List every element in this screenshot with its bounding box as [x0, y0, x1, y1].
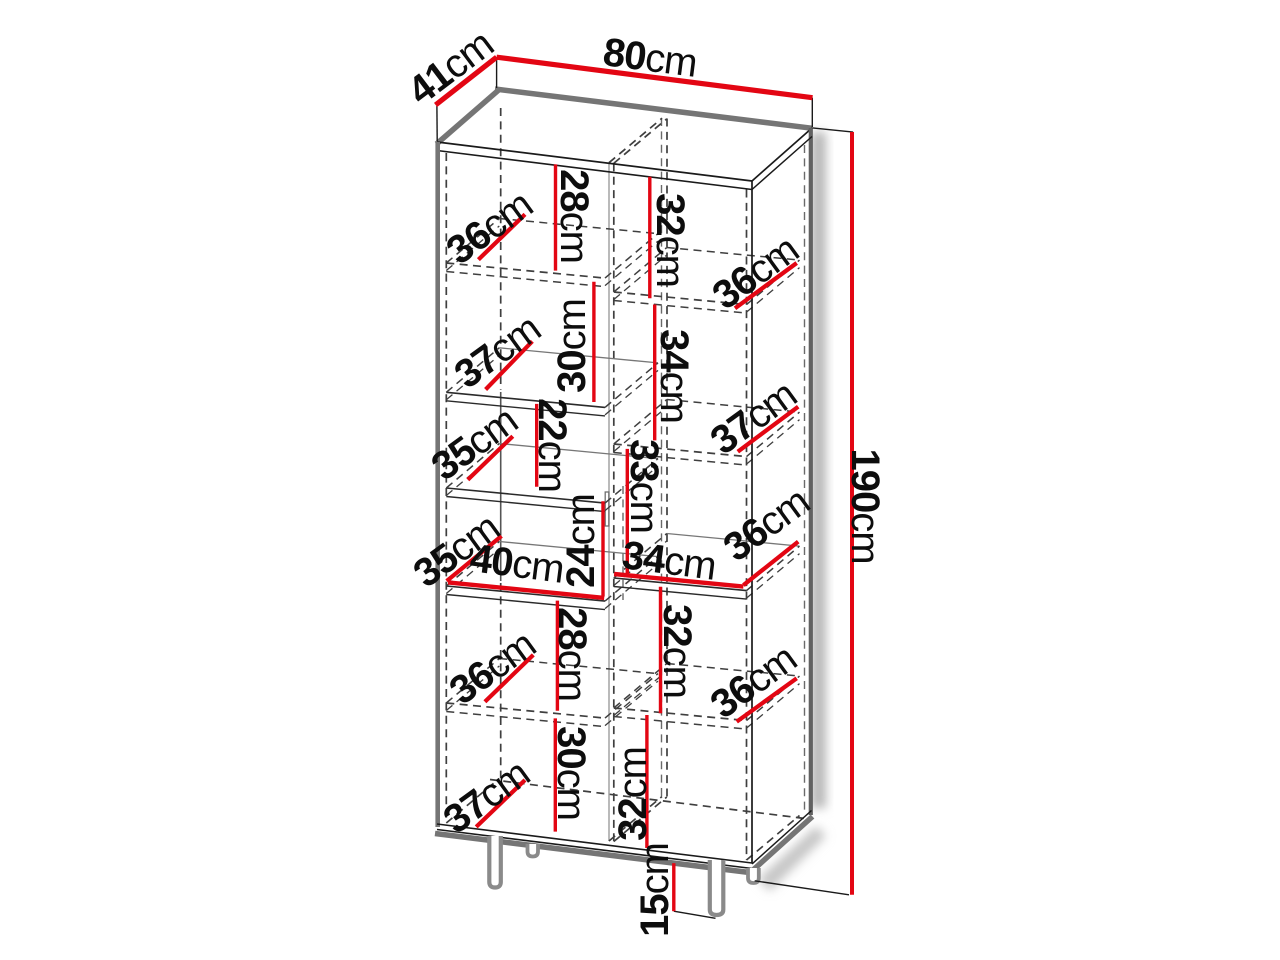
svg-text:32cm: 32cm	[611, 747, 655, 841]
svg-text:32cm: 32cm	[648, 193, 692, 287]
svg-text:30cm: 30cm	[550, 299, 594, 393]
svg-text:28cm: 28cm	[550, 607, 594, 701]
svg-text:190cm: 190cm	[843, 448, 887, 563]
svg-text:30cm: 30cm	[549, 726, 593, 820]
svg-text:24cm: 24cm	[559, 494, 603, 588]
svg-text:22cm: 22cm	[530, 398, 574, 492]
svg-text:33cm: 33cm	[622, 439, 666, 533]
svg-text:28cm: 28cm	[552, 169, 596, 263]
svg-text:34cm: 34cm	[652, 329, 696, 423]
svg-text:32cm: 32cm	[655, 604, 699, 698]
svg-text:15cm: 15cm	[633, 843, 677, 937]
